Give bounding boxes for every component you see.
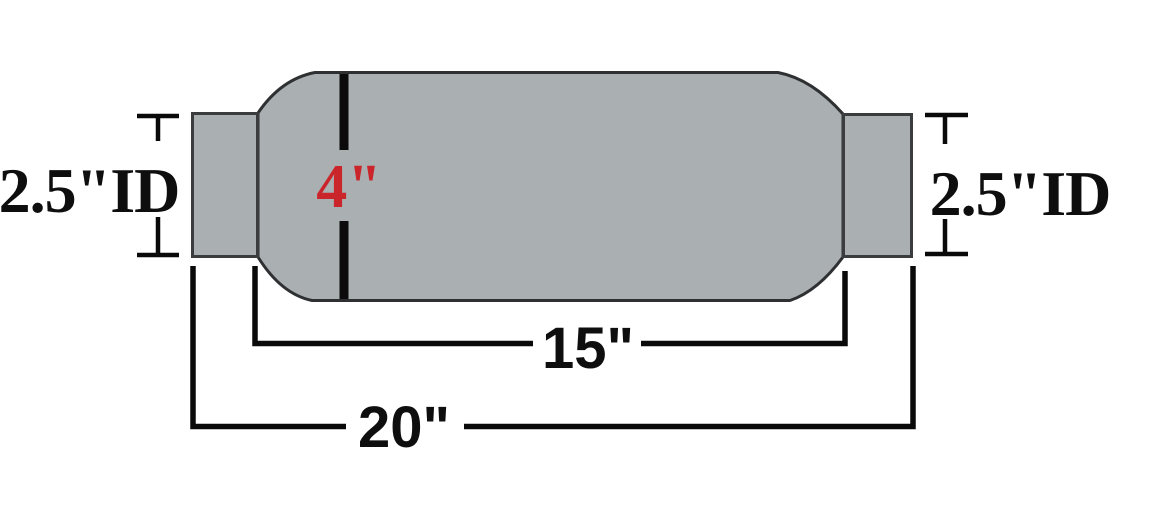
body-diameter-label: 4" xyxy=(316,153,381,221)
outlet-id-label: 2.5"ID xyxy=(930,158,1111,229)
body-length-label: 15" xyxy=(542,316,634,381)
inlet-id-label: 2.5"ID xyxy=(0,155,179,226)
overall-length-label: 20" xyxy=(358,395,450,460)
inlet-pipe xyxy=(193,114,258,257)
muffler-diagram: 2.5"ID 2.5"ID 4" 15" 20" xyxy=(0,0,1153,528)
outlet-pipe xyxy=(844,115,912,257)
diagram-canvas: 2.5"ID 2.5"ID 4" 15" 20" xyxy=(0,0,1153,528)
